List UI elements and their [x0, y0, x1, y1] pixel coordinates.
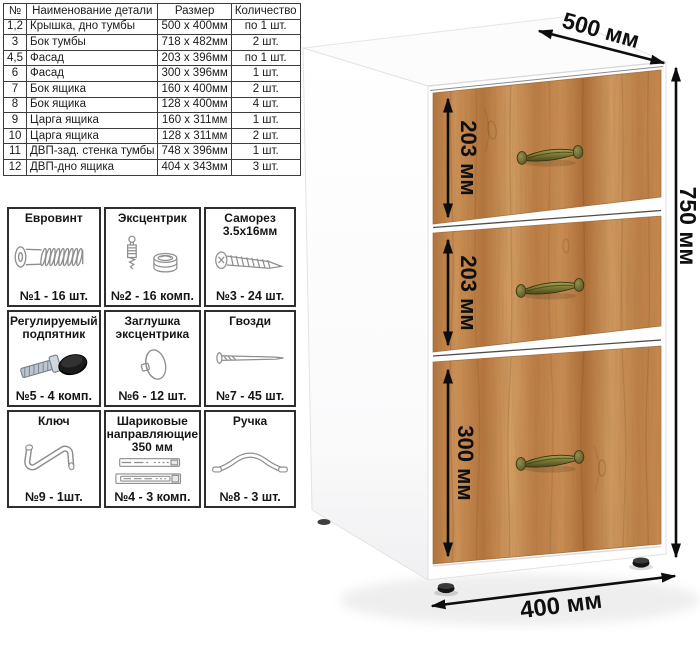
hardware-item-qty: №7 - 45 шт. — [216, 389, 284, 403]
hardware-item-handle: Ручка №8 - 3 шт. — [204, 410, 296, 508]
table-cell: 1 шт. — [231, 144, 300, 160]
table-cell: 128 х 400мм — [158, 97, 231, 113]
table-cell: 11 — [4, 144, 27, 160]
table-cell: 300 х 396мм — [158, 66, 231, 82]
hardware-item-title: Регулируемый подпятник — [10, 315, 98, 341]
table-cell: 160 х 311мм — [158, 113, 231, 129]
table-cell: 203 х 396мм — [158, 50, 231, 66]
hardware-item-qty: №5 - 4 комп. — [16, 389, 92, 403]
cabinet-illustration: 500 мм 750 мм 400 мм 203 мм 203 мм 300 м… — [300, 0, 700, 648]
table-row: 7Бок ящика160 х 400мм2 шт. — [4, 81, 301, 97]
table-cell: по 1 шт. — [231, 50, 300, 66]
parts-table-header-cell: Наименование детали — [27, 4, 158, 20]
hardware-item-cap: Заглушка эксцентрика №6 - 12 шт. — [104, 310, 201, 407]
table-row: 3Бок тумбы718 х 482мм2 шт. — [4, 35, 301, 51]
parts-table-header-cell: № — [4, 4, 27, 20]
table-cell: 4 шт. — [231, 97, 300, 113]
table-cell: ДВП-зад. стенка тумбы — [27, 144, 158, 160]
hardware-item-title: Ключ — [38, 415, 70, 428]
hardware-item-title: Ручка — [233, 415, 267, 428]
adjustable-foot-icon — [11, 341, 97, 389]
table-row: 9Царга ящика160 х 311мм1 шт. — [4, 113, 301, 129]
table-cell: 3 шт. — [231, 159, 300, 175]
table-cell: 500 х 400мм — [158, 19, 231, 35]
hardware-item-title: Евровинт — [25, 212, 83, 225]
table-cell: 718 х 482мм — [158, 35, 231, 51]
hardware-item-title: Саморез 3.5х16мм — [207, 212, 293, 238]
dim-drawer2-label: 203 мм — [456, 255, 481, 330]
hardware-item-qty: №6 - 12 шт. — [118, 389, 186, 403]
table-cell: 128 х 311мм — [158, 128, 231, 144]
euro-screw-icon — [11, 225, 97, 289]
hardware-item-excentric: Эксцентрик №2 - 16 комп. — [104, 207, 201, 307]
table-cell: Бок тумбы — [27, 35, 158, 51]
table-cell: 1 шт. — [231, 113, 300, 129]
table-cell: 8 — [4, 97, 27, 113]
hardware-item-eurovint: Евровинт №1 — [7, 207, 101, 307]
table-row: 1,2Крышка, дно тумбы500 х 400ммпо 1 шт. — [4, 19, 301, 35]
hardware-item-qty: №4 - 3 комп. — [114, 490, 190, 504]
hardware-item-key: Ключ №9 - 1шт. — [7, 410, 101, 508]
table-cell: Бок ящика — [27, 97, 158, 113]
table-cell: 6 — [4, 66, 27, 82]
hex-key-icon — [11, 428, 97, 490]
table-cell: Царга ящика — [27, 128, 158, 144]
table-cell: 9 — [4, 113, 27, 129]
table-cell: Царга ящика — [27, 113, 158, 129]
table-cell: 2 шт. — [231, 81, 300, 97]
table-cell: 160 х 400мм — [158, 81, 231, 97]
table-cell: 3 — [4, 35, 27, 51]
table-row: 6Фасад300 х 396мм1 шт. — [4, 66, 301, 82]
table-cell: 2 шт. — [231, 128, 300, 144]
table-row: 10Царга ящика128 х 311мм2 шт. — [4, 128, 301, 144]
cabinet-left-side — [303, 48, 428, 580]
nail-icon — [207, 328, 293, 389]
cam-cap-icon — [109, 341, 195, 389]
hardware-item-qty: №8 - 3 шт. — [219, 490, 280, 504]
hardware-item-title: Заглушка эксцентрика — [107, 315, 198, 341]
table-row: 8Бок ящика128 х 400мм4 шт. — [4, 97, 301, 113]
ball-slides-icon — [109, 454, 195, 490]
hardware-item-qty: №1 - 16 шт. — [20, 289, 88, 303]
self-tapping-screw-icon — [207, 238, 293, 289]
dim-height-label: 750 мм — [675, 187, 700, 266]
table-cell: Фасад — [27, 66, 158, 82]
hardware-item-qty: №9 - 1шт. — [25, 490, 83, 504]
table-cell: Фасад — [27, 50, 158, 66]
parts-table: №Наименование деталиРазмерКоличество 1,2… — [3, 3, 301, 176]
table-cell: 1 шт. — [231, 66, 300, 82]
table-cell: 4,5 — [4, 50, 27, 66]
table-cell: 2 шт. — [231, 35, 300, 51]
handle-icon — [207, 428, 293, 490]
parts-table-header-row: №Наименование деталиРазмерКоличество — [4, 4, 301, 20]
table-cell: 748 х 396мм — [158, 144, 231, 160]
hardware-item-slides: Шариковые направляющие 350 мм №4 - 3 ком… — [104, 410, 201, 508]
hardware-item-qty: №2 - 16 комп. — [111, 289, 194, 303]
table-row: 11ДВП-зад. стенка тумбы748 х 396мм1 шт. — [4, 144, 301, 160]
table-cell: 404 х 343мм — [158, 159, 231, 175]
hardware-item-foot: Регулируемый подпятник №5 - 4 комп. — [7, 310, 101, 407]
table-cell: 7 — [4, 81, 27, 97]
cam-lock-icon — [109, 225, 195, 289]
hardware-item-title: Эксцентрик — [118, 212, 187, 225]
parts-table-header-cell: Количество — [231, 4, 300, 20]
table-cell: Крышка, дно тумбы — [27, 19, 158, 35]
table-row: 12ДВП-дно ящика404 х 343мм3 шт. — [4, 159, 301, 175]
parts-table-header-cell: Размер — [158, 4, 231, 20]
hardware-item-qty: №3 - 24 шт. — [216, 289, 284, 303]
hardware-item-title: Гвозди — [229, 315, 271, 328]
table-cell: ДВП-дно ящика — [27, 159, 158, 175]
table-row: 4,5Фасад203 х 396ммпо 1 шт. — [4, 50, 301, 66]
hardware-item-samorez: Саморез 3.5х16мм №3 - 24 шт. — [204, 207, 296, 307]
dim-drawer1-label: 203 мм — [456, 120, 481, 195]
hardware-item-title: Шариковые направляющие 350 мм — [107, 415, 198, 454]
table-cell: Бок ящика — [27, 81, 158, 97]
hardware-item-nails: Гвозди №7 - 45 шт. — [204, 310, 296, 407]
dim-drawer3-label: 300 мм — [453, 425, 478, 500]
table-cell: по 1 шт. — [231, 19, 300, 35]
hardware-grid: Евровинт №1 — [7, 207, 285, 508]
table-cell: 10 — [4, 128, 27, 144]
table-cell: 1,2 — [4, 19, 27, 35]
table-cell: 12 — [4, 159, 27, 175]
